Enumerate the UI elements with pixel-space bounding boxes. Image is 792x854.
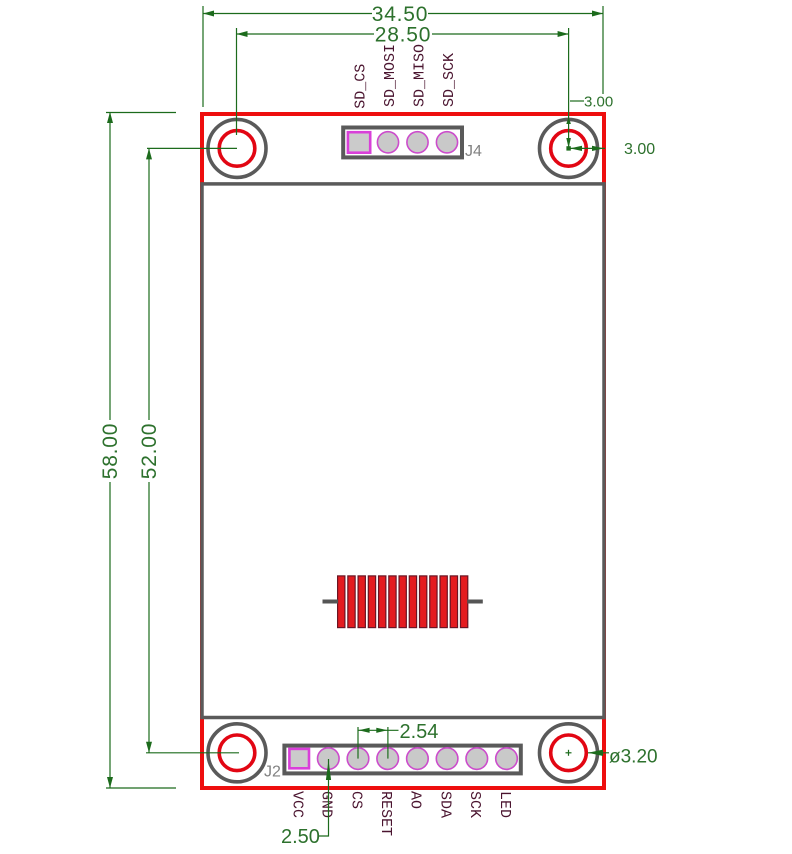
svg-text:SD_MOSI: SD_MOSI	[382, 44, 399, 107]
svg-text:J2: J2	[264, 764, 281, 781]
svg-text:2.54: 2.54	[400, 721, 439, 743]
svg-text:RESET: RESET	[377, 791, 394, 836]
svg-text:SDA: SDA	[437, 791, 454, 818]
svg-text:28.50: 28.50	[375, 24, 432, 47]
svg-text:ø3.20: ø3.20	[609, 747, 658, 768]
svg-text:3.00: 3.00	[624, 141, 655, 158]
svg-text:CS: CS	[348, 791, 365, 809]
svg-text:LED: LED	[496, 791, 513, 818]
svg-text:2.50: 2.50	[281, 826, 320, 848]
svg-text:SD_SCK: SD_SCK	[441, 53, 458, 107]
svg-text:VCC: VCC	[289, 791, 306, 818]
svg-text:GND: GND	[318, 791, 335, 818]
svg-text:52.00: 52.00	[138, 423, 161, 480]
svg-text:SCK: SCK	[466, 791, 483, 818]
svg-text:58.00: 58.00	[99, 423, 122, 480]
svg-text:AO: AO	[407, 791, 424, 809]
svg-text:J4: J4	[465, 143, 482, 160]
svg-text:SD_MISO: SD_MISO	[412, 44, 429, 107]
svg-text:3.00: 3.00	[584, 94, 613, 111]
svg-text:SD_CS: SD_CS	[353, 64, 370, 109]
